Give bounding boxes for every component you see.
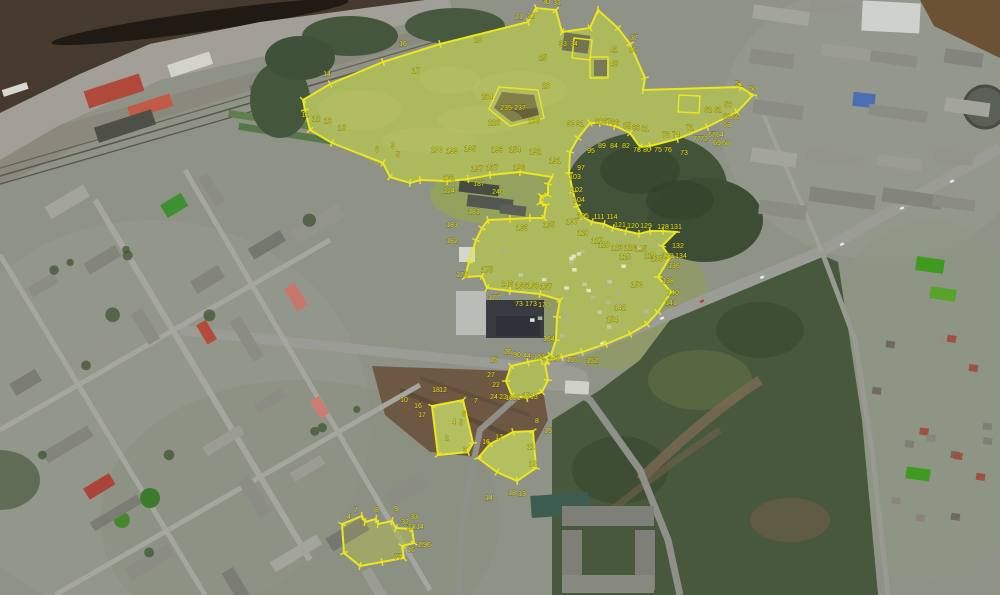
vertex-label: 168 <box>527 283 539 290</box>
vertex-label: 201 <box>443 175 455 182</box>
vertex-label: 14 <box>323 71 331 78</box>
vertex-label: 75 <box>654 147 662 154</box>
vertex-label: 132 <box>672 243 684 250</box>
vertex-label: 4 <box>347 514 351 521</box>
vertex-tick <box>749 95 757 96</box>
satellite-map-canvas[interactable]: 1112131814161720212230312528333437414648… <box>0 0 1000 595</box>
village-house <box>872 387 882 395</box>
vertex-label: 2 <box>445 435 449 442</box>
vertex-label: 224 <box>443 188 455 195</box>
vertex-label: 34 <box>570 41 578 48</box>
vertex-label: 18 <box>508 490 516 497</box>
vertex-label: 111 <box>594 214 605 221</box>
vertex-tick <box>469 443 477 444</box>
vertex-label: 166 <box>515 283 527 290</box>
vertex-label: 11 <box>527 444 534 451</box>
tree <box>123 250 133 260</box>
vertex-label: 73 <box>680 150 688 157</box>
forest-texture <box>646 180 714 220</box>
vertex-label: 133 <box>662 253 674 260</box>
tree <box>66 259 73 266</box>
vertex-label: 8 <box>375 507 379 514</box>
vertex-label: 155 <box>566 357 578 364</box>
vertex-label: 199 <box>446 148 458 155</box>
vertex-label: 17 <box>412 68 420 75</box>
vertex-label: 137 <box>486 165 498 172</box>
vertex-label: 129 <box>640 223 652 230</box>
vertex-label: 150 <box>631 282 643 289</box>
vertex-label: 17 <box>495 434 503 441</box>
vertex-label: 167 <box>540 284 552 291</box>
vertex-label: 51 <box>735 81 743 88</box>
vertex-label: 12 <box>312 116 320 123</box>
vertex-label: 16 <box>414 403 422 410</box>
vertex-label: 177 <box>488 295 500 302</box>
vertex-label: 154 <box>606 317 618 324</box>
vertex-label: 61 <box>714 107 722 114</box>
vertex-label: 31 <box>553 0 561 7</box>
vertex-label: 183 <box>446 222 458 229</box>
service-building <box>565 380 590 394</box>
vertex-label: 175 <box>481 267 493 274</box>
vertex-label: 143 <box>548 356 560 363</box>
village-house <box>950 513 960 521</box>
vertex-label: 131 <box>670 224 682 231</box>
vertex-label: 12 <box>407 524 415 531</box>
vertex-label: 5 <box>459 420 463 427</box>
village-house <box>976 473 986 481</box>
vertex-label: 135 <box>651 256 663 263</box>
vertex-label: 18 <box>338 125 346 132</box>
vertex-label: 97 <box>577 165 585 172</box>
vertex-label: 235 <box>500 105 512 112</box>
vertex-label: 13 <box>518 491 526 498</box>
school-building <box>562 506 654 526</box>
tree <box>303 214 316 227</box>
vertex-label: 1021 <box>505 395 521 402</box>
vertex-label: 25 <box>490 357 498 364</box>
vertex-label: 120 <box>627 223 639 230</box>
vertex-label: 107 <box>566 219 578 226</box>
vertex-label: 7 <box>474 398 478 405</box>
vertex-label: 165 <box>543 222 555 229</box>
vertex-label: 118 <box>598 242 609 249</box>
vertex-label: 105 <box>577 213 589 220</box>
bright-trees <box>140 488 160 508</box>
village-house <box>937 336 947 344</box>
vertex-label: 96 <box>423 542 431 549</box>
vertex-label: 46 <box>629 47 637 54</box>
apartment-block <box>456 291 486 335</box>
vertex-label: 50 <box>749 86 757 93</box>
vertex-tick <box>517 477 518 485</box>
vertex-label: 162 <box>533 354 545 361</box>
vertex-tick <box>362 512 363 520</box>
vertex-label: 20 <box>474 37 482 44</box>
vertex-label: 8 <box>535 418 539 425</box>
vertex-label: 192 <box>529 149 541 156</box>
vertex-label: 13 <box>324 118 332 125</box>
vertex-tick <box>643 86 644 94</box>
vertex-label: 76 <box>664 147 672 154</box>
village-house <box>891 496 901 504</box>
vertex-label: 14 <box>416 524 424 531</box>
vertex-label: 170 <box>538 302 550 309</box>
vertex-label: 13 <box>530 394 538 401</box>
tree <box>49 265 58 274</box>
vertex-label: 164 <box>543 336 555 343</box>
vertex-label: 25 <box>539 55 547 62</box>
vertex-label: 62 <box>704 107 712 114</box>
vertex-label: 197 <box>471 166 483 173</box>
village-house <box>983 422 993 430</box>
vertex-label: 121 <box>614 222 626 229</box>
school-building <box>562 575 654 593</box>
vertex-label: 90 <box>513 352 521 359</box>
tree <box>164 450 175 461</box>
vertex-label: 237 <box>514 105 526 112</box>
vertex-label: 200 <box>431 147 443 154</box>
vertex-label: 7 <box>354 507 358 514</box>
vertex-label: 83 <box>632 125 640 132</box>
vertex-label: 191 <box>549 158 561 165</box>
vertex-label: 123 <box>611 245 623 252</box>
vertex-label: 44 <box>523 353 531 360</box>
tree <box>38 451 47 460</box>
vertex-label: 16 <box>399 41 407 48</box>
vertex-label: 33 <box>410 514 418 521</box>
vertex-label: 22 <box>527 13 535 20</box>
vertex-label: 90 <box>567 121 575 128</box>
tree <box>105 308 120 323</box>
vertex-label: 73 <box>515 301 523 308</box>
vertex-label: 24 <box>490 394 498 401</box>
dirt-patch <box>750 498 830 542</box>
vertex-label: 12 <box>439 387 447 394</box>
vertex-label: 16 <box>482 439 490 446</box>
tree <box>203 309 215 321</box>
vertex-label: 59 <box>723 114 731 121</box>
vertex-label: 11 <box>301 112 308 119</box>
vertex-label: 113 <box>577 230 588 237</box>
vertex-label: 173 <box>525 301 537 308</box>
vertex-label: 69 <box>713 140 721 147</box>
vertex-label: 102 <box>571 187 583 194</box>
vertex-label: 128 <box>657 224 669 231</box>
tree <box>81 360 91 370</box>
vertex-label: 74 <box>672 132 680 139</box>
vertex-tick <box>378 520 379 528</box>
vertex-label: 89 <box>598 143 606 150</box>
vertex-label: 64 <box>716 132 724 139</box>
vertex-label: 163 <box>516 225 528 232</box>
vertex-tick <box>672 232 680 233</box>
vertex-label: 12 <box>529 461 537 468</box>
vertex-label: 142 <box>614 305 626 312</box>
tree <box>353 406 360 413</box>
vertex-tick <box>544 380 552 381</box>
vertex-label: 138 <box>662 278 674 285</box>
forest-texture <box>716 302 804 358</box>
vertex-label: 41 <box>610 47 618 54</box>
vertex-label: 82 <box>622 143 630 150</box>
vertex-label: 91 <box>576 121 584 128</box>
vertex-label: 95 <box>587 148 595 155</box>
vertex-label: 104 <box>573 197 585 204</box>
vertex-label: 234 <box>481 94 493 101</box>
vertex-label: 246 <box>501 281 513 288</box>
vertex-label: 15 <box>544 428 552 435</box>
vertex-label: 181 <box>468 209 480 216</box>
vertex-label: 115 <box>619 254 630 261</box>
village-house <box>926 434 936 442</box>
vertex-label: 33 <box>559 41 567 48</box>
vertex-label: 15 <box>522 393 530 400</box>
village-house <box>915 514 925 522</box>
vertex-label: 193 <box>491 147 503 154</box>
vertex-label: 236 <box>528 118 540 125</box>
vertex-label: 37 <box>630 35 638 42</box>
vertex-label: 196 <box>513 165 525 172</box>
vertex-tick <box>510 287 511 295</box>
vertex-label: 14 <box>485 495 493 502</box>
vertex-label: 3 <box>463 447 467 454</box>
vertex-label: 60 <box>732 114 740 121</box>
vertex-tick <box>489 171 490 179</box>
vertex-label: 87 <box>603 119 611 126</box>
vertex-label: 9 <box>394 506 398 513</box>
vertex-label: 85 <box>623 123 631 130</box>
vertex-label: 152 <box>586 358 598 365</box>
vertex-label: 73 <box>662 132 670 139</box>
vertex-label: 63 <box>723 122 731 129</box>
village-house <box>983 437 993 445</box>
vertex-label: 8 <box>375 147 379 154</box>
vertex-label: 154 <box>509 147 521 154</box>
vertex-label: 134 <box>675 253 687 260</box>
tree <box>318 423 327 432</box>
vertex-label: 78 <box>633 147 641 154</box>
vertex-label: 30 <box>542 0 550 6</box>
vertex-label: 182 <box>446 238 458 245</box>
village-house <box>947 335 957 343</box>
village-house <box>885 340 895 348</box>
vertex-label: 67 <box>708 132 716 139</box>
vertex-label: 195 <box>464 146 476 153</box>
garden-shed <box>538 317 543 321</box>
vertex-label: 178 <box>456 272 468 279</box>
vertex-label: 125 <box>635 246 647 253</box>
vertex-label: 17 <box>418 412 426 419</box>
vertex-label: 21 <box>515 14 523 21</box>
vertex-label: 140 <box>667 290 679 297</box>
vertex-label: 86 <box>611 120 619 127</box>
vertex-label: 72 <box>700 136 708 143</box>
garden-shed <box>530 318 535 322</box>
vertex-tick <box>410 179 411 187</box>
vertex-label: 114 <box>606 214 617 221</box>
vertex-label: 16 <box>407 547 415 554</box>
vertex-label: 71 <box>686 125 694 132</box>
vertex-label: 240 <box>492 189 504 196</box>
vertex-label: 103 <box>569 174 581 181</box>
vertex-label: 136 <box>668 263 680 270</box>
vertex-label: 81 <box>641 126 649 133</box>
vertex-label: 141 <box>665 300 677 307</box>
vertex-label: 187 <box>473 181 485 188</box>
satellite-map-viewport[interactable]: 1112131814161720212230312528333437414648… <box>0 0 1000 595</box>
vertex-label: 77 <box>394 554 402 561</box>
vertex-label: 68 <box>722 140 730 147</box>
village-house <box>953 452 963 460</box>
vertex-label: 48 <box>610 61 618 68</box>
vertex-label: 84 <box>610 143 618 150</box>
vertex-label: 6 <box>462 411 466 418</box>
vertex-tick <box>553 317 561 318</box>
village-house <box>905 440 915 448</box>
vertex-label: 9 <box>391 143 395 150</box>
vertex-label: 4 <box>452 419 456 426</box>
vertex-label: 228 <box>488 120 500 127</box>
warehouse <box>861 1 920 34</box>
vertex-label: 27 <box>487 372 495 379</box>
vertex-label: 22 <box>492 382 500 389</box>
tree <box>144 547 154 557</box>
vertex-label: 5 <box>396 152 400 159</box>
vertex-label: 26 <box>504 349 512 356</box>
vertex-label: 10 <box>400 397 408 404</box>
vertex-label: 80 <box>643 147 651 154</box>
village-house <box>968 364 978 372</box>
vertex-label: 58 <box>724 102 732 109</box>
vertex-label: 88 <box>595 119 603 126</box>
vertex-label: 28 <box>542 83 550 90</box>
